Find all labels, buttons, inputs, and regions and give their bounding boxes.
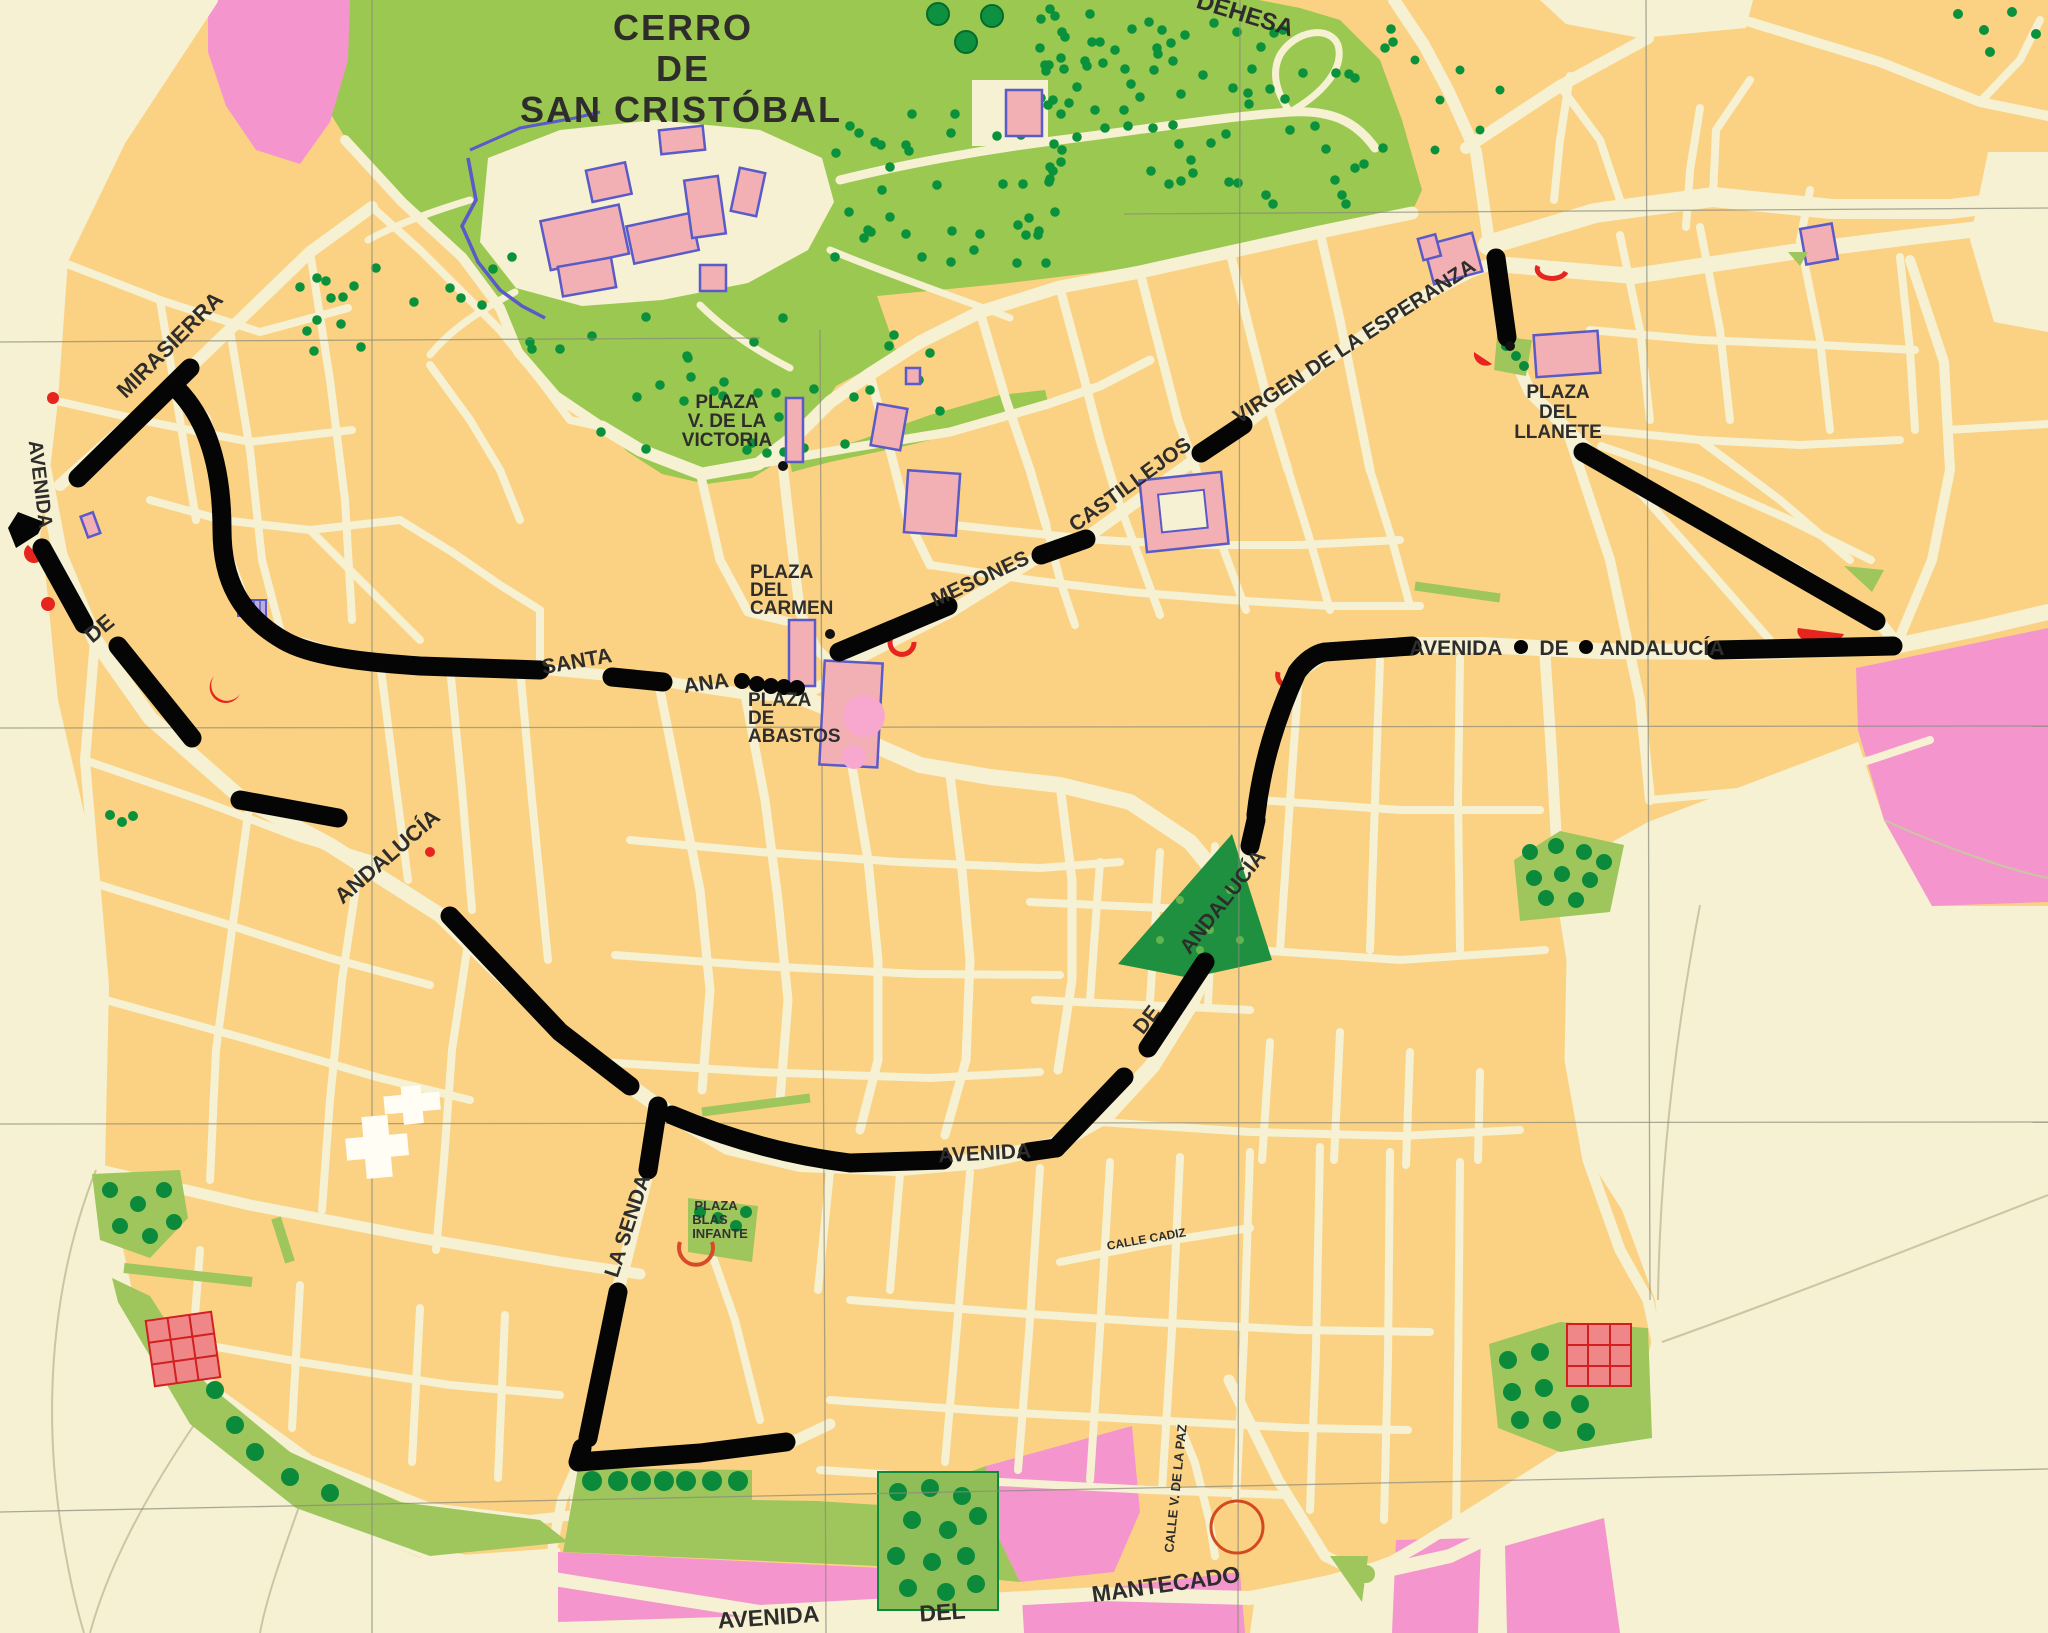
svg-text:DEL: DEL	[919, 1597, 967, 1626]
svg-text:INFANTE: INFANTE	[692, 1226, 748, 1241]
svg-text:ANDALUCÍA: ANDALUCÍA	[1600, 637, 1725, 660]
svg-text:PLAZA: PLAZA	[694, 1198, 738, 1213]
svg-text:VICTORIA: VICTORIA	[682, 430, 773, 451]
svg-text:LLANETE: LLANETE	[1514, 422, 1602, 443]
svg-text:DE: DE	[1539, 637, 1568, 660]
svg-text:SAN CRISTÓBAL: SAN CRISTÓBAL	[520, 88, 842, 130]
svg-text:CARMEN: CARMEN	[750, 598, 833, 619]
svg-text:PLAZA: PLAZA	[695, 392, 759, 413]
svg-text:AVENIDA: AVENIDA	[1410, 637, 1503, 660]
svg-text:PLAZA: PLAZA	[1526, 382, 1590, 403]
svg-text:CERRO: CERRO	[613, 7, 753, 48]
svg-text:V. DE LA: V. DE LA	[688, 411, 767, 432]
svg-text:BLAS: BLAS	[692, 1212, 728, 1227]
svg-text:DEL: DEL	[1539, 402, 1577, 423]
svg-text:DE: DE	[656, 48, 710, 89]
svg-text:AVENIDA: AVENIDA	[938, 1140, 1032, 1168]
svg-text:ABASTOS: ABASTOS	[748, 726, 841, 747]
